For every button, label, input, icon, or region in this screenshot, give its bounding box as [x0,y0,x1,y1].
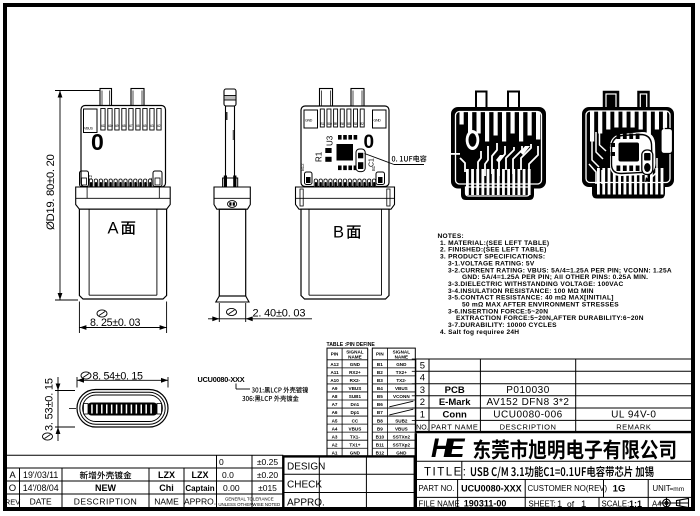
svg-text:NO.: NO. [416,425,429,432]
svg-text:4: 4 [420,373,425,384]
svg-text:DESCRIPTION: DESCRIPTION [500,423,557,432]
svg-text:0.00: 0.00 [223,483,240,493]
svg-text:Conn: Conn [443,409,467,420]
svg-text:A10: A10 [330,378,339,383]
svg-text:1: 1 [581,499,586,510]
svg-text:GND: GND [305,119,313,123]
svg-text:1G: 1G [613,484,626,495]
svg-text:NAME: NAME [348,354,362,359]
svg-text:NEW: NEW [95,483,117,493]
svg-text:190311-00: 190311-00 [464,499,507,509]
svg-text:NAME: NAME [395,354,409,359]
svg-text:B11: B11 [376,442,385,447]
svg-text:PCB: PCB [445,385,465,396]
svg-text:APPRO.: APPRO. [287,498,325,509]
svg-text:SSTXp2: SSTXp2 [393,442,411,447]
svg-text:0: 0 [219,457,224,467]
svg-text:UL 94V-0: UL 94V-0 [611,409,656,420]
svg-text:GND: GND [396,362,407,367]
svg-text:TITLE:: TITLE: [424,467,468,479]
svg-text:TABLE :PIN DEFINE: TABLE :PIN DEFINE [327,342,376,348]
svg-text:B9: B9 [377,426,383,431]
svg-text:O: O [9,483,16,494]
svg-text:U3: U3 [326,135,335,146]
svg-text:2: 2 [420,397,425,408]
svg-text:TX2-: TX2- [396,378,406,383]
svg-text:AV152 DFN8 3*2: AV152 DFN8 3*2 [487,397,570,408]
svg-text:0: 0 [364,132,375,153]
svg-text:APPRO.: APPRO. [184,497,216,507]
svg-text:Dp1: Dp1 [351,410,360,415]
svg-text:TX2+: TX2+ [396,370,407,375]
svg-text:RX2+: RX2+ [349,370,361,375]
svg-text:A8: A8 [332,394,338,399]
svg-text:CUSTOMER NO(REV): CUSTOMER NO(REV) [528,484,608,493]
svg-text:REV: REV [5,498,20,507]
svg-text:FILE NAME: FILE NAME [419,499,460,508]
svg-text:UCU0080-XXX: UCU0080-XXX [198,375,245,384]
svg-text:UNLESS OTHERWISE NOTED: UNLESS OTHERWISE NOTED [218,502,280,507]
svg-text:SSTXn2: SSTXn2 [393,434,411,439]
svg-text:0.0: 0.0 [222,470,234,480]
svg-text:B12: B12 [300,163,305,171]
svg-text:=mm: =mm [670,486,685,493]
svg-text:PIN: PIN [331,352,339,357]
svg-text:B7: B7 [377,410,383,415]
svg-text:SUB1: SUB1 [349,394,362,399]
svg-text:A5: A5 [332,418,338,423]
svg-text:B5: B5 [377,394,383,399]
svg-text:A3: A3 [332,434,338,439]
svg-text:C1: C1 [369,158,376,167]
svg-text:VBUS: VBUS [395,386,408,391]
svg-text:GND: GND [396,450,407,455]
svg-text:R1: R1 [315,151,324,162]
svg-text:A: A [9,470,16,481]
svg-text:SHEET:: SHEET: [529,499,556,508]
svg-text:B4: B4 [377,386,383,391]
svg-text:1: 1 [557,499,562,510]
svg-text:UCU0080-XXX: UCU0080-XXX [461,484,522,494]
svg-text:2. 40±0. 03: 2. 40±0. 03 [253,308,306,320]
svg-text:19'/03/11: 19'/03/11 [23,470,58,480]
svg-text:of: of [567,499,575,509]
svg-text:UNIT: UNIT [653,484,671,493]
svg-text:LZX: LZX [192,470,209,480]
svg-text:4. Salt fog requiree 24H: 4. Salt fog requiree 24H [440,329,519,336]
svg-text:±015: ±015 [258,483,277,493]
svg-text:3: 3 [420,385,425,396]
svg-text:Dn1: Dn1 [351,402,360,407]
svg-text:A12: A12 [330,362,339,367]
svg-text:1: 1 [420,409,425,420]
svg-text:DATE: DATE [30,497,52,507]
svg-text:8. 25±0. 03: 8. 25±0. 03 [90,317,140,329]
svg-text:B2: B2 [377,370,383,375]
svg-text:Captain: Captain [185,484,214,493]
svg-text:LZX: LZX [158,470,175,480]
svg-text:5: 5 [420,360,425,371]
svg-text:A11: A11 [330,370,339,375]
svg-text:±0.25: ±0.25 [257,457,278,467]
svg-text:REMARK: REMARK [616,423,651,432]
svg-text:B8: B8 [377,418,383,423]
svg-text:VBUS: VBUS [349,426,362,431]
svg-text:PIN: PIN [376,352,384,357]
svg-text:CHECK: CHECK [287,480,322,491]
svg-text:A7: A7 [332,402,338,407]
svg-text:B6: B6 [377,402,383,407]
svg-text:B: B [333,224,344,242]
svg-text:B10: B10 [376,434,385,439]
svg-text:GND: GND [350,450,361,455]
svg-text:A4: A4 [332,426,338,431]
svg-text:CC: CC [352,418,359,423]
svg-text:HE: HE [431,433,465,463]
svg-text:SCALE:: SCALE: [602,499,630,508]
svg-text:A: A [108,220,119,238]
svg-text:SUB2: SUB2 [395,418,408,423]
svg-text:3. 53±0. 15: 3. 53±0. 15 [44,378,56,431]
svg-text:A10: A10 [108,124,113,128]
svg-text:B10: B10 [327,122,332,126]
svg-text:B1: B1 [371,165,376,171]
svg-text:UCU0080-006: UCU0080-006 [493,409,562,420]
svg-text:VBUS: VBUS [349,386,362,391]
svg-text:TX1+: TX1+ [349,442,360,447]
svg-text:P010030: P010030 [506,385,550,396]
svg-text:0: 0 [91,129,104,155]
svg-text:PART NO.: PART NO. [419,484,455,493]
svg-text:Chi: Chi [159,483,174,493]
svg-text:NAME: NAME [154,497,179,507]
svg-text:A9: A9 [332,386,338,391]
svg-text:GND: GND [350,362,361,367]
svg-text:GENERAL TOLERANCE: GENERAL TOLERANCE [225,497,274,502]
svg-text:B11: B11 [320,122,325,126]
svg-text:PART NAME: PART NAME [431,423,478,432]
svg-text:A6: A6 [332,410,338,415]
svg-text:B1: B1 [377,362,383,367]
svg-text:A11: A11 [101,124,106,128]
svg-text:A4: A4 [652,499,662,508]
svg-text:±0.20: ±0.20 [257,470,278,480]
svg-text:VBUS: VBUS [395,426,408,431]
svg-text:DESIGN: DESIGN [287,462,325,473]
svg-text:E-Mark: E-Mark [439,397,471,408]
svg-text:VCONN: VCONN [393,394,410,399]
svg-text:DESCRIPTION: DESCRIPTION [74,497,138,507]
svg-text:14'/08/04: 14'/08/04 [23,483,59,493]
svg-text:8. 54±0. 15: 8. 54±0. 15 [93,371,143,383]
svg-text:B12: B12 [376,450,385,455]
svg-text:RX2-: RX2- [350,378,361,383]
svg-text:A2: A2 [332,442,338,447]
svg-text:ØD19. 80±0. 20: ØD19. 80±0. 20 [45,155,57,230]
svg-text:A1: A1 [332,450,338,455]
svg-text:TX1-: TX1- [350,434,360,439]
svg-text:GND: GND [374,119,382,123]
svg-text:1:1: 1:1 [629,499,642,509]
svg-text:B3: B3 [377,378,383,383]
